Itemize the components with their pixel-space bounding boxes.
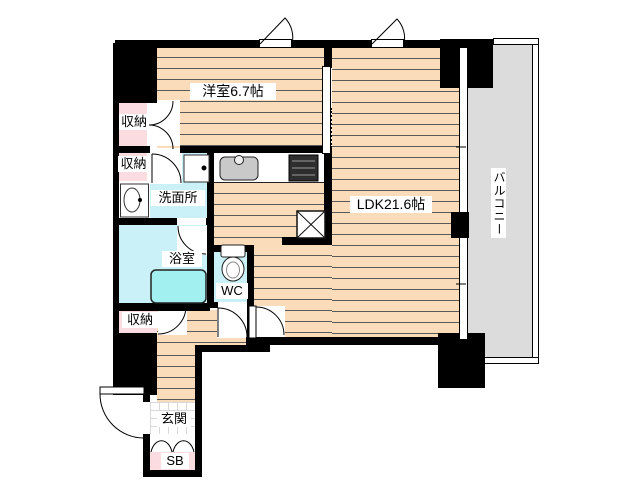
washroom-door-zone <box>150 153 182 184</box>
wall-corridor-right <box>195 345 202 477</box>
washroom-label: 洗面所 <box>151 190 205 206</box>
wall-room-divider-top <box>324 43 332 68</box>
wall-westernroom-bottom <box>113 146 150 153</box>
balcony-railing-bottom <box>484 357 539 364</box>
window-leaf-west <box>259 39 292 48</box>
wall-kitchen-top <box>180 146 332 153</box>
kitchen-counter <box>214 152 324 183</box>
sliding-door-track <box>330 108 333 168</box>
wall-fridge-south <box>282 237 332 245</box>
ldk-floor-east <box>332 48 460 338</box>
kitchen-floor <box>214 183 324 245</box>
bathroom-label: 浴室 <box>162 251 202 267</box>
wall-ldk-bottom <box>246 337 468 345</box>
wc-label: WC <box>216 283 248 299</box>
shoe-box-label: SB <box>161 453 189 469</box>
western-room-label: 洋室6.7帖 <box>190 83 276 100</box>
wall-bottom-left-mass <box>113 333 157 395</box>
balcony-window-pier <box>451 212 469 238</box>
wall-washroom-bath <box>113 218 177 225</box>
balcony-railing-right <box>532 38 539 364</box>
corridor-floor <box>157 345 195 402</box>
entrance-label: 玄関 <box>157 411 191 427</box>
closet-door-zone <box>147 100 180 146</box>
wall-entrance-left-bottom <box>143 434 150 472</box>
ldk-door-zone <box>255 306 285 338</box>
wall-washroom-bath-stub <box>206 218 214 225</box>
wall-bath-bottom <box>113 303 210 311</box>
balcony-label: バルコニー <box>491 168 506 238</box>
storage-middle-label: 収納 <box>118 156 149 172</box>
wall-wc-right <box>247 245 254 345</box>
wall-hall-south <box>195 345 270 352</box>
floor-plan: 洋室6.7帖 LDK21.6帖 バルコニー 収納 収納 洗面所 浴室 WC 収納… <box>0 0 640 480</box>
ldk-label: LDK21.6帖 <box>350 196 432 213</box>
wc-door-zone <box>217 308 248 338</box>
storage-lower-label: 収納 <box>122 312 158 328</box>
wall-top-3 <box>404 40 442 48</box>
balcony-railing-top <box>493 38 539 45</box>
pillar-bottom-right <box>438 333 485 388</box>
balcony-window-lower <box>459 238 468 339</box>
wall-kitchen-left <box>207 146 214 245</box>
wall-top-2 <box>292 40 372 48</box>
vanity-nook <box>119 183 150 218</box>
balcony-window-upper <box>459 48 468 212</box>
storage-lower-door-zone <box>158 311 187 335</box>
wall-entrance-left-top <box>143 393 150 402</box>
window-leaf-east <box>371 39 404 48</box>
entrance-lower-zone <box>150 434 195 452</box>
wall-wc-left <box>207 252 214 308</box>
pillar-top-left <box>113 43 157 103</box>
wall-under-sb <box>143 470 202 477</box>
storage-upper-label: 収納 <box>119 114 149 130</box>
